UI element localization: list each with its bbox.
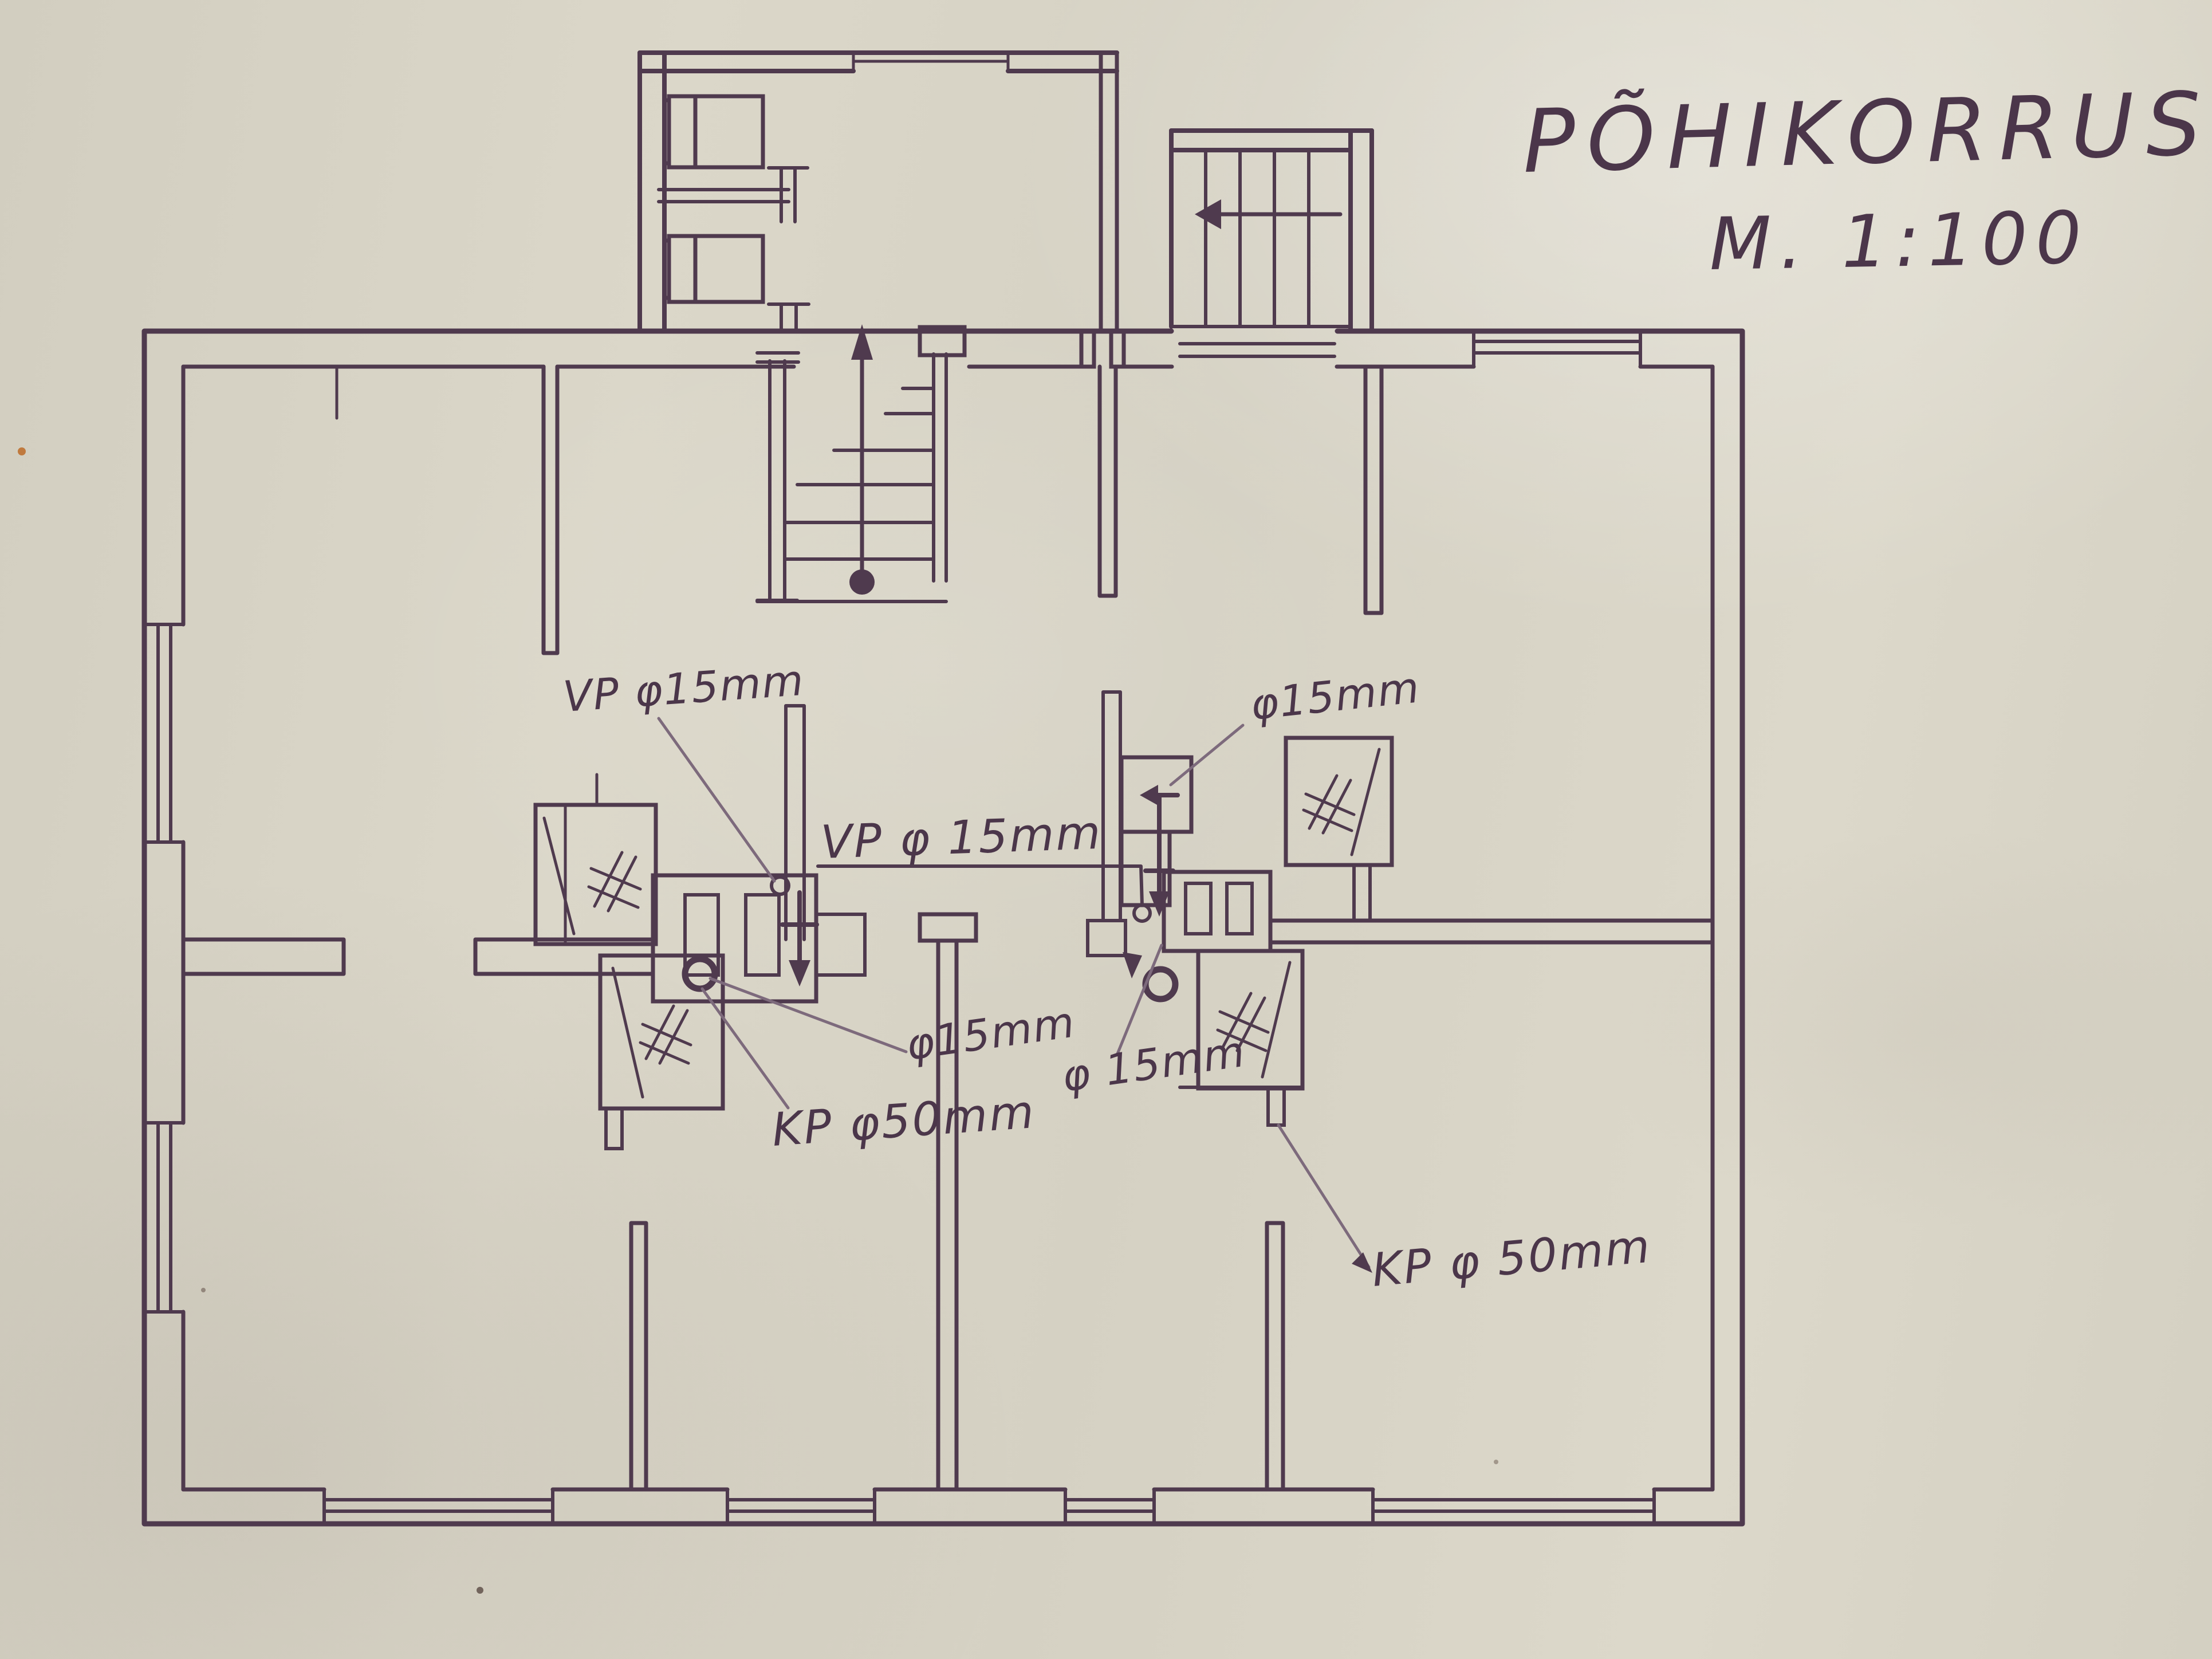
left-boiler bbox=[600, 956, 723, 1149]
hatch-icon bbox=[589, 852, 640, 911]
scale-label: M. 1:100 bbox=[1709, 195, 2090, 286]
right-sink bbox=[1121, 757, 1191, 917]
left-stove bbox=[653, 875, 816, 1001]
windows bbox=[144, 331, 1654, 1524]
label-right-phi15-upper: φ15mm bbox=[1248, 663, 1423, 730]
exterior-walls bbox=[144, 331, 1742, 1524]
veranda-closet bbox=[664, 96, 763, 302]
label-left-phi15: φ15mm bbox=[903, 997, 1079, 1070]
hatch-icon bbox=[1304, 776, 1354, 833]
right-boiler-upper bbox=[1286, 738, 1392, 921]
blueprint-paper: PÕHIKORRUS M. 1:100 VP φ15mm VP φ 15mm φ… bbox=[0, 0, 2212, 1659]
left-unit-fixtures bbox=[536, 706, 865, 1149]
right-riser-pipe bbox=[1103, 692, 1120, 919]
hatch-icon bbox=[640, 1006, 691, 1063]
exterior-stairs-arrow-icon bbox=[1195, 199, 1221, 229]
veranda bbox=[640, 53, 1117, 331]
floor-plan-svg: PÕHIKORRUS M. 1:100 VP φ15mm VP φ 15mm φ… bbox=[0, 0, 2212, 1659]
label-left-vp: VP φ15mm bbox=[561, 656, 806, 722]
stairs-start-dot bbox=[849, 569, 875, 595]
label-left-kp50: KP φ50mm bbox=[770, 1085, 1037, 1157]
labels: PÕHIKORRUS M. 1:100 VP φ15mm VP φ 15mm φ… bbox=[561, 73, 2212, 1297]
right-drain-arrow-icon bbox=[1123, 952, 1142, 978]
left-pipe-down-arrow-icon bbox=[789, 960, 810, 986]
left-wardrobe bbox=[536, 775, 656, 944]
exterior-stairs bbox=[1171, 131, 1372, 331]
page-title: PÕHIKORRUS bbox=[1521, 73, 2212, 192]
right-stove bbox=[1164, 872, 1270, 951]
right-vp-connection bbox=[1134, 905, 1150, 921]
label-center-vp: VP φ 15mm bbox=[820, 806, 1103, 869]
label-right-kp50: KP φ 50mm bbox=[1370, 1220, 1654, 1297]
leader-lines bbox=[659, 718, 1372, 1273]
